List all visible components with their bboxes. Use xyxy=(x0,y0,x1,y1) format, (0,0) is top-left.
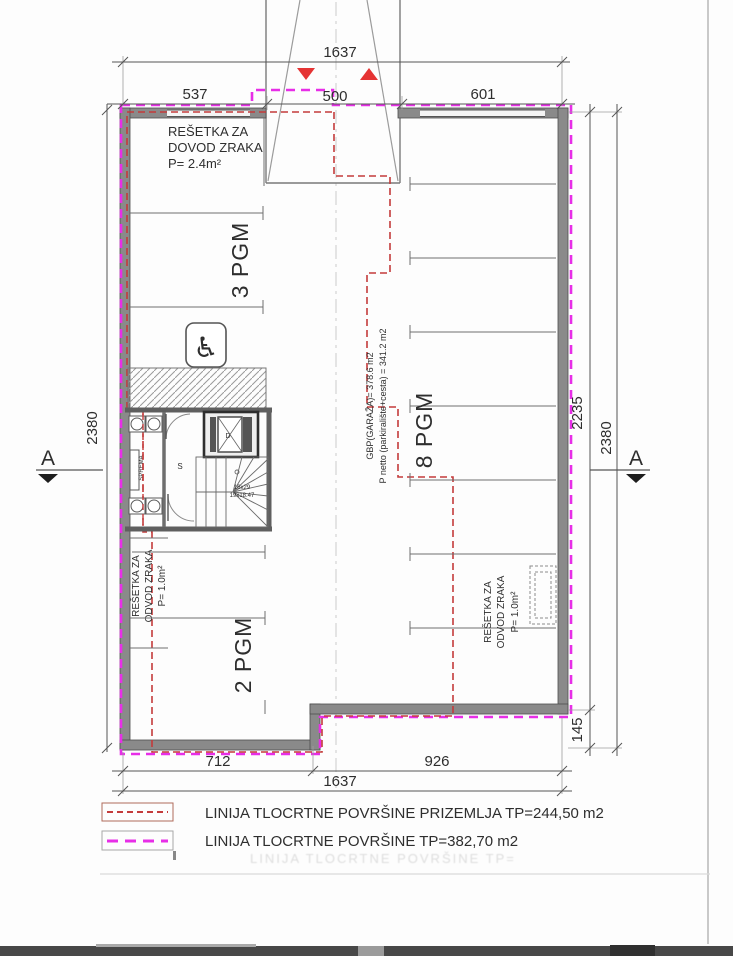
elevator-shaft: D xyxy=(204,412,258,457)
scan-mark xyxy=(173,851,176,860)
dim-top-overall: 1637 xyxy=(323,44,356,61)
dim-seg-center: 500 xyxy=(322,88,347,105)
supply-note-line2: DOVOD ZRAKA xyxy=(168,140,263,155)
wall-bottom-left xyxy=(120,740,320,750)
door-arc-top xyxy=(166,414,190,439)
ramp-slope-right xyxy=(367,0,398,181)
exhaust-right-line3: P= 1.0m² xyxy=(510,591,521,633)
dim-seg-left: 537 xyxy=(182,86,207,103)
ground-floor-outline-red xyxy=(127,112,453,752)
accessible-parking-sign: ♿ xyxy=(186,323,226,367)
grille-box-inner xyxy=(535,572,551,618)
supply-note-line1: REŠETKA ZA xyxy=(168,124,249,139)
exhaust-left-line1: REŠETKA ZA xyxy=(129,555,142,617)
exhaust-grille-left: REŠETKA ZA ODVOD ZRAKA P= 1.0m² xyxy=(129,538,168,648)
dim-right-outer: 2380 xyxy=(598,421,615,454)
wall-vent-strips xyxy=(167,110,545,117)
section-arrow-icon xyxy=(38,474,58,483)
ramp-down-arrow-icon xyxy=(297,68,315,80)
supply-note-line3: P= 2.4m² xyxy=(168,156,222,171)
stair-hall-label: S xyxy=(177,462,182,471)
grille-box-outer xyxy=(530,566,556,624)
stair-dim-2: 19x18.47 xyxy=(230,493,255,499)
legend: LINIJA TLOCRTNE POVRŠINE PRIZEMLJA TP=24… xyxy=(102,803,604,850)
storage-box-circle xyxy=(148,418,160,430)
vent-strip xyxy=(420,110,545,117)
ramp-up-arrow-icon xyxy=(360,68,378,80)
stair-dim-1: 16x29 xyxy=(234,485,251,491)
floor-area-outline-magenta xyxy=(121,90,571,754)
dim-seg-right: 601 xyxy=(470,86,495,103)
ghost-bleedthrough-text: LINIJA TLOCRTNE POVRŠINE TP= xyxy=(250,851,516,866)
elevator-rail-right xyxy=(243,417,252,452)
wall-right xyxy=(558,108,568,714)
exhaust-right-line2: ODVOD ZRAKA xyxy=(496,575,507,648)
garage-area-note: GBP(GARAŽA)= 378.6 m2 P netto (parkirali… xyxy=(365,329,388,484)
elevator-rail-left xyxy=(210,417,216,452)
storage-box-circle xyxy=(148,500,160,512)
dim-bottom-overall: 1637 xyxy=(323,773,356,790)
supply-grille-note: REŠETKA ZA DOVOD ZRAKA P= 2.4m² xyxy=(168,124,263,171)
hatched-shaft xyxy=(128,368,266,408)
scan-bottom-band-dark xyxy=(610,945,655,956)
staircase xyxy=(196,457,268,527)
gbp-line1: GBP(GARAŽA)= 378.6 m2 xyxy=(365,352,375,459)
section-arrow-icon xyxy=(626,474,646,483)
dim-step: 145 xyxy=(569,717,586,742)
dim-bottom-left: 712 xyxy=(205,753,230,770)
dim-right-inner: 2235 xyxy=(569,396,586,429)
vent-strip xyxy=(167,110,250,117)
exhaust-right-line1: REŠETKA ZA xyxy=(481,581,494,643)
scan-bottom-band-gap xyxy=(358,946,384,956)
storage-counter xyxy=(130,450,139,490)
exhaust-grille-right: REŠETKA ZA ODVOD ZRAKA P= 1.0m² xyxy=(481,566,556,648)
dim-left-outer: 2380 xyxy=(84,411,101,444)
gbp-line2: P netto (parkiralište+cesta) = 341.2 m2 xyxy=(378,329,388,484)
scan-artifacts: LINIJA TLOCRTNE POVRŠINE TP= xyxy=(0,851,733,956)
exhaust-left-line2: ODVOD ZRAKA xyxy=(144,549,155,622)
parking-right-label: 8 PGM xyxy=(411,392,437,469)
wall-bottom-right xyxy=(310,704,568,714)
parking-left-label: 3 PGM xyxy=(227,222,253,299)
wheelchair-icon: ♿ xyxy=(193,331,218,364)
storage-box-circle xyxy=(131,500,143,512)
storage-label: SPREMA xyxy=(139,455,145,480)
scan-bottom-band-light xyxy=(96,944,256,947)
floor-plan-drawing: 3 PGM ♿ SPREMA S xyxy=(0,0,733,960)
legend-label-ground-floor: LINIJA TLOCRTNE POVRŠINE PRIZEMLJA TP=24… xyxy=(205,805,604,822)
exhaust-left-line3: P= 1.0m² xyxy=(157,565,168,607)
storage-room xyxy=(129,416,162,514)
building-walls xyxy=(120,108,568,750)
section-letter: A xyxy=(41,447,55,470)
scanned-floor-plan-page: 3 PGM ♿ SPREMA S xyxy=(0,0,733,960)
legend-label-floor-area: LINIJA TLOCRTNE POVRŠINE TP=382,70 m2 xyxy=(205,833,518,850)
section-marker-left: A xyxy=(36,447,103,483)
elevator-label: D xyxy=(225,433,230,440)
stair-core: SPREMA S D xyxy=(125,410,272,529)
dim-bottom-right: 926 xyxy=(424,753,449,770)
section-letter: A xyxy=(629,447,643,470)
door-arc-bottom xyxy=(168,494,194,521)
parking-bottom-label: 2 PGM xyxy=(230,617,256,694)
storage-box-circle xyxy=(131,418,143,430)
